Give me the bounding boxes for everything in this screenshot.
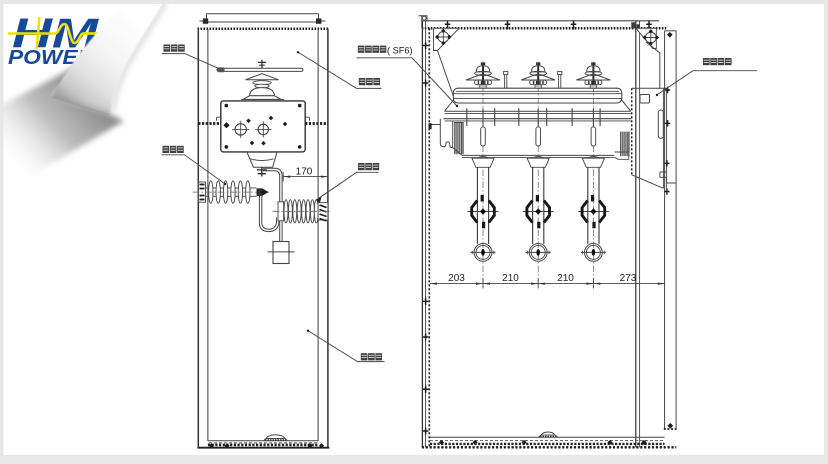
svg-text:210: 210 bbox=[557, 273, 574, 284]
svg-text:( SF6): ( SF6) bbox=[387, 46, 413, 56]
svg-text:210: 210 bbox=[502, 273, 519, 284]
svg-text:170: 170 bbox=[296, 167, 313, 178]
svg-text:203: 203 bbox=[448, 273, 465, 284]
svg-text:273: 273 bbox=[620, 273, 637, 284]
